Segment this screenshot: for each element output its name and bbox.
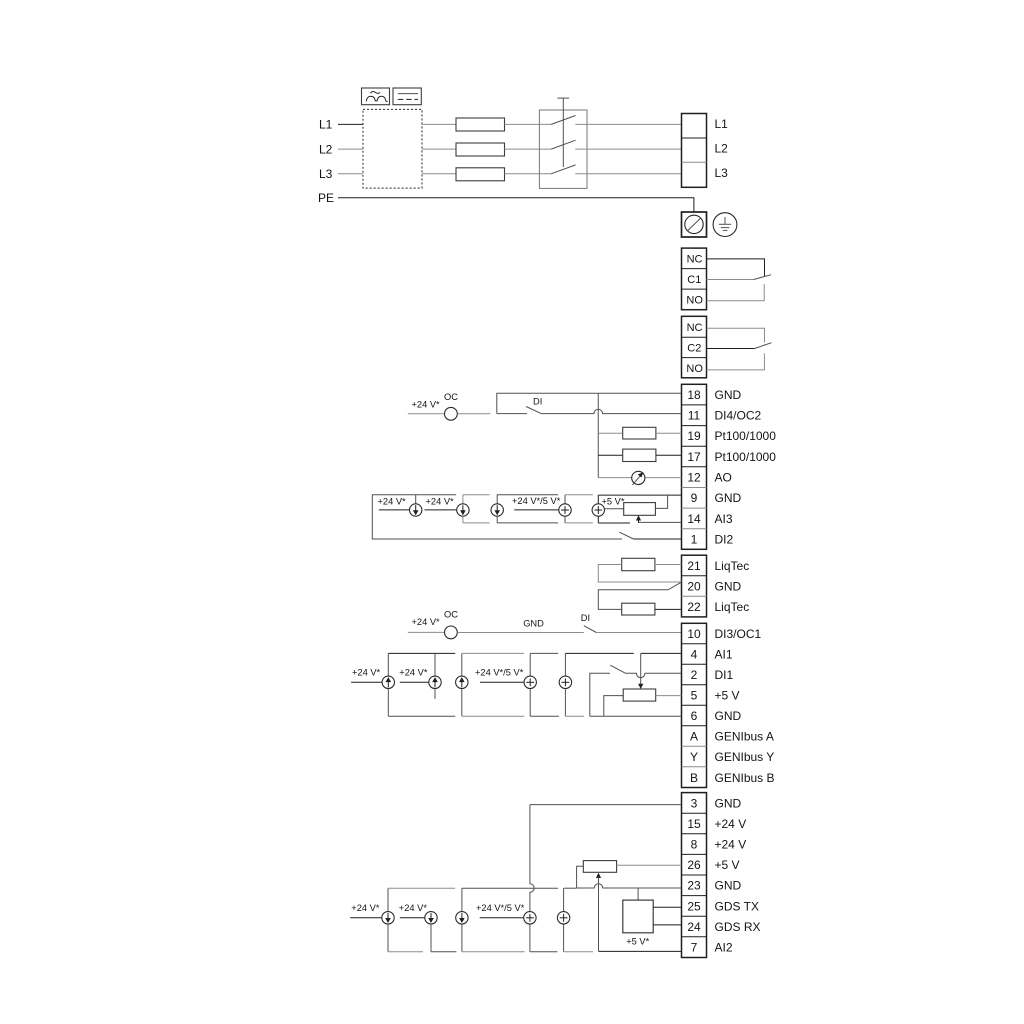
svg-text:LiqTec: LiqTec — [715, 559, 750, 573]
svg-text:L3: L3 — [319, 167, 333, 181]
svg-text:24: 24 — [687, 920, 701, 934]
svg-text:DI: DI — [533, 396, 542, 406]
svg-text:1: 1 — [691, 532, 698, 546]
svg-text:DI: DI — [581, 613, 590, 623]
svg-text:GND: GND — [715, 709, 742, 723]
svg-text:5: 5 — [691, 689, 698, 703]
svg-text:10: 10 — [687, 627, 701, 641]
svg-text:22: 22 — [687, 600, 701, 614]
svg-text:GENIbus A: GENIbus A — [715, 730, 774, 744]
svg-text:L2: L2 — [319, 142, 333, 156]
svg-text:NC: NC — [687, 254, 703, 266]
svg-text:GND: GND — [715, 388, 742, 402]
svg-text:OC: OC — [444, 392, 458, 402]
svg-text:GND: GND — [715, 579, 742, 593]
svg-text:+24 V: +24 V — [715, 817, 747, 831]
svg-text:+24 V*: +24 V* — [426, 496, 455, 506]
svg-text:A: A — [690, 730, 698, 744]
svg-text:3: 3 — [691, 796, 698, 810]
svg-text:LiqTec: LiqTec — [715, 600, 750, 614]
svg-text:+24 V*: +24 V* — [412, 399, 441, 409]
svg-text:20: 20 — [687, 579, 701, 593]
svg-text:L1: L1 — [715, 117, 729, 131]
svg-text:7: 7 — [691, 941, 698, 955]
svg-text:15: 15 — [687, 817, 701, 831]
svg-text:+24 V*: +24 V* — [351, 903, 380, 913]
svg-text:AI1: AI1 — [715, 648, 733, 662]
svg-text:17: 17 — [687, 450, 701, 464]
svg-text:Pt100/1000: Pt100/1000 — [715, 429, 777, 443]
svg-text:GND: GND — [715, 491, 742, 505]
svg-text:14: 14 — [687, 512, 701, 526]
svg-text:GDS TX: GDS TX — [715, 899, 759, 913]
svg-text:4: 4 — [691, 648, 698, 662]
svg-text:+24 V: +24 V — [715, 838, 747, 852]
svg-text:NO: NO — [686, 363, 703, 375]
svg-text:L1: L1 — [319, 118, 333, 132]
svg-text:AI2: AI2 — [715, 941, 733, 955]
svg-text:18: 18 — [687, 388, 701, 402]
svg-text:DI2: DI2 — [715, 532, 734, 546]
svg-text:L2: L2 — [715, 141, 729, 155]
svg-text:Pt100/1000: Pt100/1000 — [715, 450, 777, 464]
svg-text:NC: NC — [687, 322, 703, 334]
svg-text:Y: Y — [690, 750, 698, 764]
svg-text:GENIbus Y: GENIbus Y — [715, 750, 775, 764]
svg-text:23: 23 — [687, 879, 701, 893]
svg-text:+24 V*/5 V*: +24 V*/5 V* — [512, 496, 561, 506]
svg-text:GND: GND — [715, 879, 742, 893]
svg-text:+24 V*: +24 V* — [399, 668, 428, 678]
svg-text:GND: GND — [715, 796, 742, 810]
svg-text:+24 V*/5 V*: +24 V*/5 V* — [476, 903, 525, 913]
svg-text:21: 21 — [687, 559, 701, 573]
svg-text:+24 V*: +24 V* — [412, 617, 441, 627]
svg-text:DI3/OC1: DI3/OC1 — [715, 627, 762, 641]
svg-text:C1: C1 — [687, 274, 701, 286]
svg-text:9: 9 — [691, 491, 698, 505]
svg-text:+24 V*: +24 V* — [352, 668, 381, 678]
svg-text:OC: OC — [444, 610, 458, 620]
svg-text:PE: PE — [318, 191, 334, 205]
svg-text:+5 V*: +5 V* — [602, 497, 625, 507]
svg-text:6: 6 — [691, 709, 698, 723]
svg-text:+24 V*/5 V*: +24 V*/5 V* — [475, 668, 524, 678]
svg-text:25: 25 — [687, 899, 701, 913]
svg-text:8: 8 — [691, 838, 698, 852]
svg-text:+24 V*: +24 V* — [399, 903, 428, 913]
svg-text:11: 11 — [688, 409, 701, 423]
svg-text:19: 19 — [687, 429, 701, 443]
svg-text:NO: NO — [686, 295, 703, 307]
svg-text:AO: AO — [715, 471, 732, 485]
svg-text:26: 26 — [687, 858, 701, 872]
svg-text:GND: GND — [523, 619, 544, 629]
svg-text:+24 V*: +24 V* — [378, 496, 407, 506]
svg-text:L3: L3 — [715, 166, 729, 180]
svg-text:2: 2 — [691, 668, 698, 682]
svg-text:DI1: DI1 — [715, 668, 734, 682]
svg-text:DI4/OC2: DI4/OC2 — [715, 409, 762, 423]
svg-text:C2: C2 — [687, 343, 701, 355]
svg-text:GENIbus B: GENIbus B — [715, 771, 775, 785]
svg-text:GDS RX: GDS RX — [715, 920, 761, 934]
svg-text:12: 12 — [687, 471, 701, 485]
svg-text:+5 V: +5 V — [715, 689, 740, 703]
svg-text:B: B — [690, 771, 698, 785]
svg-text:+5 V: +5 V — [715, 858, 740, 872]
svg-text:+5 V*: +5 V* — [626, 937, 649, 947]
svg-text:AI3: AI3 — [715, 512, 733, 526]
